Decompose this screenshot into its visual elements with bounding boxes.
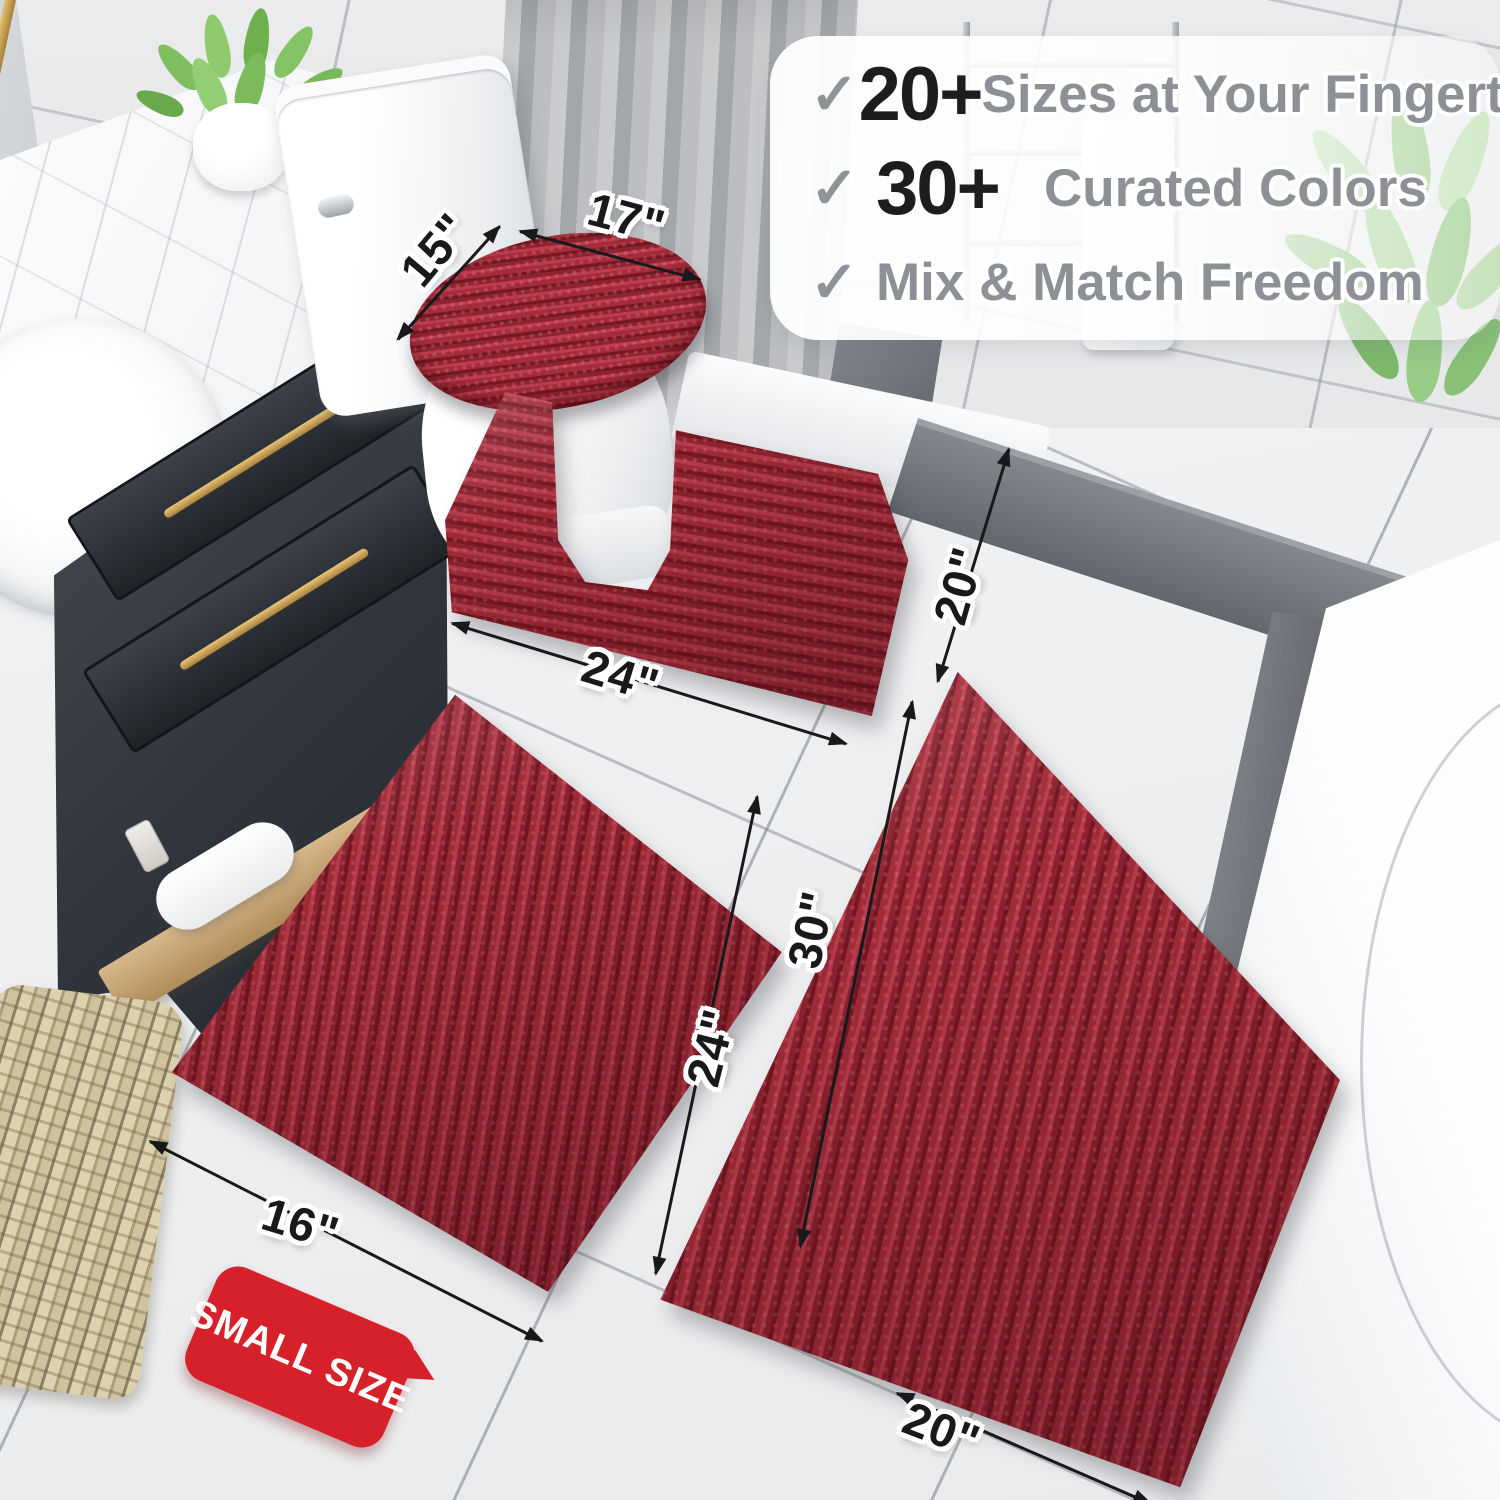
feature-number: 30+ — [876, 145, 1044, 232]
checkmark-icon: ✓ — [810, 154, 876, 222]
bathroom-scene: 15" 17" 24" 20" 30" 24" 16" 20" SMALL SI… — [0, 0, 1500, 1500]
feature-label: Curated Colors — [1044, 158, 1427, 219]
feature-label: Sizes at Your Fingertips — [982, 64, 1500, 125]
rug-large-pile — [638, 660, 1358, 1500]
feature-row-mix-match: ✓ Mix & Match Freedom — [810, 239, 1500, 325]
checkmark-icon: ✓ — [810, 60, 859, 128]
checkmark-icon: ✓ — [810, 248, 876, 316]
feature-row-sizes: ✓ 20+ Sizes at Your Fingertips — [810, 51, 1500, 137]
feature-number: 20+ — [859, 51, 982, 138]
feature-row-colors: ✓ 30+ Curated Colors — [810, 145, 1500, 231]
rug-large — [638, 660, 1358, 1500]
rug-shading — [638, 660, 1358, 1500]
feature-callout: ✓ 20+ Sizes at Your Fingertips ✓ 30+ Cur… — [770, 36, 1500, 340]
feature-label: Mix & Match Freedom — [876, 252, 1424, 313]
plant-pot — [193, 103, 289, 191]
